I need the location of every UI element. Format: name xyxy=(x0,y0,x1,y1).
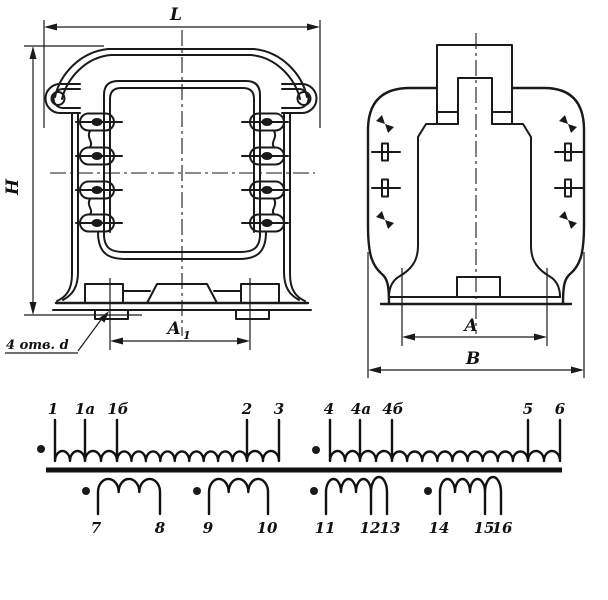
terminal-label: 8 xyxy=(155,519,166,537)
polarity-dot xyxy=(312,446,320,454)
bell-cover xyxy=(45,49,316,301)
terminal-label: 4б xyxy=(382,400,403,418)
center-foot xyxy=(457,277,500,297)
dim-label-H: Н xyxy=(3,178,23,196)
terminal-label: 7 xyxy=(91,519,102,537)
terminal-label: 4 xyxy=(324,400,334,418)
dim-label-A: А xyxy=(462,316,478,336)
secondary-winding-9-10: 9 10 xyxy=(193,479,278,537)
dim-label-A1: А xyxy=(165,319,181,339)
secondary-winding-14-15-16: 14 15 16 xyxy=(424,477,513,537)
top-bracket xyxy=(437,45,512,124)
polarity-dot xyxy=(82,487,90,495)
terminal-label: 4а xyxy=(351,400,371,418)
terminal-label: 3 xyxy=(274,400,284,418)
holes-callout: 4 отв. d xyxy=(5,311,109,353)
front-view: L Н xyxy=(3,5,320,353)
cover-inner xyxy=(62,55,300,99)
terminal-label: 9 xyxy=(203,519,214,537)
winding-schematic: 1 1а 1б 2 3 4 4а 4б 5 6 7 8 9 xyxy=(37,400,566,537)
terminal-label: 10 xyxy=(257,519,278,537)
secondary-winding-7-8: 7 8 xyxy=(82,479,166,537)
pin-lug-diagonal xyxy=(376,211,394,229)
terminal-label: 6 xyxy=(555,400,566,418)
pin-lug-diagonal xyxy=(376,115,394,133)
side-pins-right xyxy=(555,115,583,229)
terminal-label: 14 xyxy=(429,519,450,537)
terminal-label: 1 xyxy=(48,400,58,418)
terminal-label: 11 xyxy=(315,519,336,537)
terminal-label: 16 xyxy=(492,519,513,537)
side-view: А В xyxy=(368,33,584,378)
side-pins-left xyxy=(372,115,400,229)
primary-winding-2: 4 4а 4б 5 6 xyxy=(312,400,566,461)
pin-lug-diagonal xyxy=(559,211,577,229)
dimension-A: А xyxy=(402,268,547,346)
terminal-label: 2 xyxy=(241,400,252,418)
foot-hole-centerlines xyxy=(110,278,250,350)
cover-outer xyxy=(55,49,307,97)
terminal-label: 13 xyxy=(380,519,401,537)
primary-winding-1: 1 1а 1б 2 3 xyxy=(37,400,284,461)
polarity-dot xyxy=(37,445,45,453)
bracket-feet xyxy=(437,112,512,124)
terminal-label: 5 xyxy=(523,400,533,418)
dimension-A1: А 1 xyxy=(110,319,250,345)
pin-lug-diagonal xyxy=(559,115,577,133)
holes-note-label: 4 отв. d xyxy=(6,338,69,353)
cover-flanges xyxy=(57,272,305,301)
dim-label-L: L xyxy=(169,5,182,25)
polarity-dot xyxy=(193,487,201,495)
drawing-sheet: L Н xyxy=(0,0,608,600)
dim-label-B: В xyxy=(465,349,480,369)
dim-label-A1-sub: 1 xyxy=(183,329,191,342)
terminal-label: 12 xyxy=(360,519,381,537)
terminal-label: 1а xyxy=(75,400,95,418)
transformer-drawing: L Н xyxy=(0,0,608,600)
polarity-dot xyxy=(424,487,432,495)
polarity-dot xyxy=(310,487,318,495)
secondary-winding-11-12-13: 11 12 13 xyxy=(310,477,400,537)
terminal-label: 1б xyxy=(107,400,128,418)
